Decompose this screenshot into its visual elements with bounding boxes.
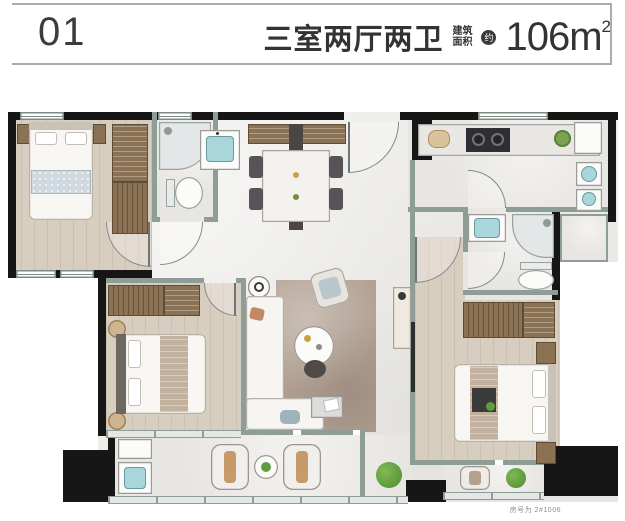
utility-platform [560, 214, 608, 262]
window-bathroom1-top [158, 112, 192, 120]
window-master-balcony-bottom [443, 492, 544, 500]
balcony-sliding-door [241, 430, 360, 435]
bedroom2-pillow-bottom [128, 378, 141, 406]
dining-chair-1 [249, 156, 263, 178]
master-headboard [548, 364, 556, 442]
bedroom1-wardrobe-lower [112, 182, 148, 234]
bedroom1-blanket [31, 170, 91, 194]
wall-step-bottom-left [63, 450, 108, 502]
dining-chair-3 [329, 156, 343, 178]
layout-title: 三室两厅两卫 [263, 16, 443, 58]
toilet1-bowl [175, 177, 203, 209]
wall-left [8, 112, 16, 278]
window-balcony-bottom [108, 496, 408, 504]
balcony-washing-machine [118, 462, 152, 494]
area-value-group: 106m2 [505, 15, 610, 60]
refrigerator [574, 122, 602, 154]
master-nightstand-bottom [536, 442, 556, 464]
floorplan-page: 01 三室两厅两卫 建筑 面积 约 106m2 [0, 0, 625, 521]
armchair-cushion [318, 276, 343, 301]
shower2-head-icon [543, 219, 551, 227]
lounge-chair-left [211, 444, 249, 490]
table-decor-icon [293, 172, 299, 178]
master-balcony-chair-cushion [469, 471, 481, 485]
header-top-rule [12, 3, 612, 5]
wall-master-bottom-left [410, 460, 443, 465]
washer-upper [576, 162, 602, 186]
balcony-table [254, 455, 278, 479]
master-bed [454, 364, 556, 442]
dining-chair-2 [249, 188, 263, 210]
sofa-pillow-orange [249, 307, 265, 322]
stove-burner-left [472, 133, 485, 146]
bedroom1-headboard [29, 122, 93, 130]
master-balcony-chair [460, 466, 490, 490]
master-bedroom-door-leaf [415, 237, 417, 282]
washer-lower [576, 189, 602, 211]
toilet2-tank [520, 262, 552, 270]
window-bedroom1-bottom-a [16, 270, 56, 278]
speaker-icon [398, 292, 406, 300]
wall-bedroom2-left [98, 278, 106, 436]
bedroom2-wardrobe-left [108, 285, 164, 316]
master-balcony-plant-icon [506, 468, 526, 488]
dryer-drum-icon [582, 192, 596, 206]
master-pillow-bottom [532, 406, 546, 434]
bedroom2-bed-runner [160, 336, 188, 412]
area-label-line1: 建筑 [452, 26, 472, 38]
area-label: 建筑 面积 [452, 26, 472, 49]
cutting-board-icon [428, 130, 450, 148]
bedroom2-nightstand-bottom [108, 412, 126, 430]
wall-bedroom1-bathroom1 [152, 112, 157, 222]
bedroom1-bed [29, 122, 93, 220]
unit-number: 01 [38, 10, 87, 55]
vanity-sink-basin [206, 136, 234, 162]
tv-screen-icon [411, 322, 415, 392]
lounge-chair-right [283, 444, 321, 490]
wall-bathroom1-bottom-a [152, 217, 160, 222]
toilet2-bowl [518, 270, 554, 290]
bedroom2-headboard [116, 334, 126, 414]
potted-plant-large-icon [376, 462, 402, 488]
bathroom2-sink-basin [474, 218, 500, 238]
area-superscript: 2 [602, 17, 610, 37]
bedroom2-wardrobe-right [164, 285, 200, 316]
window-bedroom1-bottom-b [60, 270, 94, 278]
header-right-group: 三室两厅两卫 建筑 面积 约 106m2 [263, 11, 610, 63]
bedroom1-pillow-left [35, 132, 57, 145]
area-unit: m [569, 15, 601, 60]
vanity-counter [200, 130, 240, 170]
dining-chair-4 [329, 188, 343, 210]
approx-badge-icon: 约 [481, 30, 496, 45]
balcony-cabinet [118, 439, 152, 459]
window-bedroom2-bottom [106, 430, 241, 438]
wall-kitchen-bottom-a [408, 207, 468, 212]
master-balcony-sliding-door [443, 460, 544, 465]
area-value: 106 [505, 15, 569, 60]
bedroom1-wardrobe-upper [112, 124, 148, 182]
tv-console [393, 287, 411, 349]
window-kitchen-top [478, 112, 548, 120]
washer-drum-icon [581, 166, 597, 182]
bedroom1-door-leaf [148, 222, 150, 266]
bathroom2-vanity [468, 214, 506, 242]
bathroom2-toilet [516, 262, 556, 292]
coffee-side-table-dark [304, 360, 326, 378]
outside-right-notch [560, 262, 618, 460]
area-label-line2: 面积 [452, 37, 472, 49]
lounge-chair-left-cushion [224, 451, 236, 483]
wall-right [608, 112, 616, 222]
floorplan [8, 112, 618, 508]
master-wardrobe-right [523, 302, 555, 338]
master-wardrobe-left [463, 302, 523, 338]
shower-head-icon [164, 127, 172, 135]
header-right-cap [610, 3, 612, 65]
master-nightstand-top [536, 342, 556, 364]
vanity-faucet-icon [216, 132, 219, 135]
living-side-table [248, 276, 270, 298]
washing-machine-drum-icon [124, 467, 146, 489]
window-bedroom1-top [20, 112, 64, 120]
tray-plant-icon [486, 402, 495, 411]
kitchen-counter [418, 124, 600, 156]
entry-door-leaf [348, 122, 350, 172]
bedroom1-pillow-right [65, 132, 87, 145]
master-bed-tray [472, 388, 496, 412]
bedroom1-nightstand-right [93, 124, 106, 144]
table-plant-icon [293, 194, 299, 200]
wall-balcony-nook [360, 430, 365, 502]
wall-bathroom1-bottom-b [204, 217, 218, 222]
ottoman [280, 410, 300, 424]
coffee-table-bowl-icon [316, 344, 322, 350]
bedroom2-door-leaf [234, 283, 236, 315]
kitchen-stove [466, 128, 510, 152]
master-balcony-floor [443, 460, 544, 496]
bathroom1-toilet [166, 176, 204, 210]
wall-balcony-divider-black [406, 480, 446, 502]
master-pillow-top [532, 370, 546, 398]
wall-bedroom2-top-a [106, 278, 204, 283]
magazine-icon [324, 399, 339, 411]
stove-burner-right [491, 133, 504, 146]
vegetable-basket-icon [554, 130, 571, 147]
unit-note: 房号为 2#1006 [510, 505, 561, 515]
dining-table [262, 150, 330, 222]
bedroom2-pillow-top [128, 340, 141, 368]
header-bottom-rule [12, 63, 612, 65]
toilet1-tank [166, 179, 175, 207]
wall-balcony-left [108, 432, 115, 502]
coffee-table-decor-icon [304, 335, 311, 342]
magazine-table [311, 396, 343, 418]
lounge-chair-right-cushion [296, 451, 308, 483]
balcony-plant-icon [261, 462, 271, 472]
bedroom2-bed [116, 334, 206, 414]
